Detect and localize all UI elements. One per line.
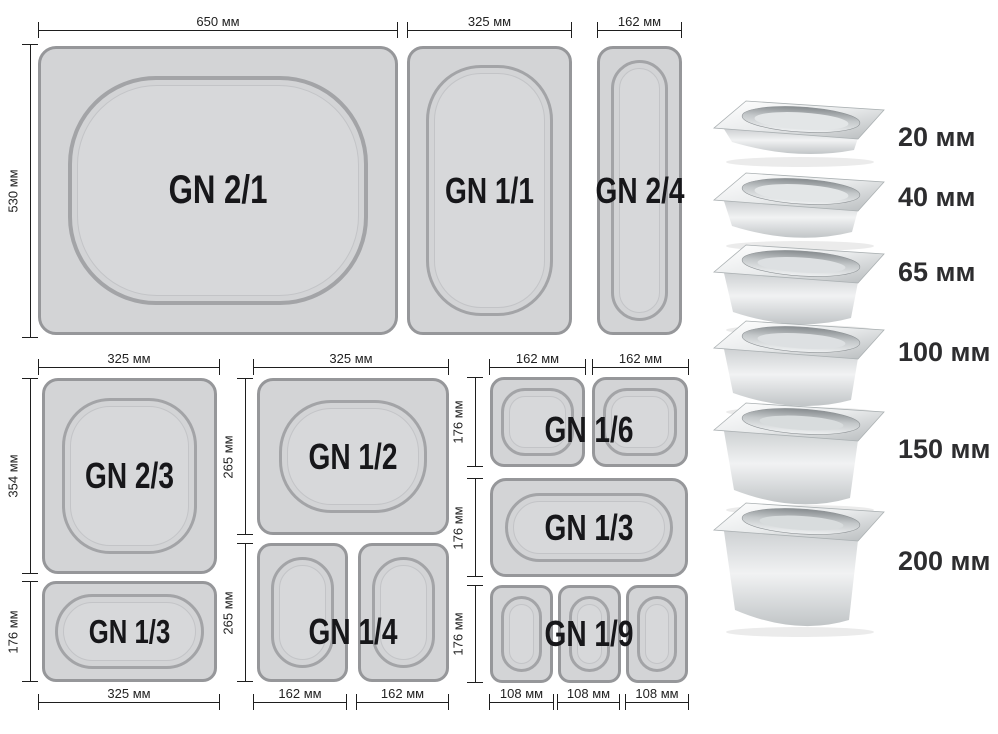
dim-width-162mm-top: 162 мм [597,22,682,38]
dim-label: 162 мм [356,686,449,701]
depth-label-150mm: 150 мм [898,434,998,466]
dim-label: 108 мм [625,686,689,701]
dim-label: 176 мм [451,612,466,655]
dim-label: 530 мм [6,169,21,212]
dim-tick [237,378,253,379]
tray-label-gn-1-3-left: GN 1/3 [61,581,198,682]
dim-line [475,478,476,577]
dim-line [489,702,554,703]
dim-width-325mm-bl-bottom: 325 мм [38,694,220,710]
pan-photo-20mm [712,96,890,175]
dim-label: 176 мм [451,506,466,549]
dim-line [30,44,31,338]
dim-tick [237,543,253,544]
dim-line [592,367,689,368]
dim-label: 265 мм [221,591,236,634]
dim-height-176mm-bl: 176 мм [22,581,38,682]
tray-label-gn-1-9: GN 1/9 [512,612,666,656]
dim-line [38,702,220,703]
dim-tick [467,377,483,378]
dim-height-354mm: 354 мм [22,378,38,574]
dim-tick [237,681,253,682]
dim-width-650mm: 650 мм [38,22,398,38]
dim-label: 325 мм [407,14,572,29]
dim-tick [22,337,38,338]
dim-line [30,581,31,682]
dim-label: 265 мм [221,435,236,478]
dim-width-325mm-bl-top: 325 мм [38,359,220,375]
dim-line [407,30,572,31]
dim-label: 176 мм [6,610,21,653]
dim-line [597,30,682,31]
dim-label: 162 мм [597,14,682,29]
dim-tick [467,682,483,683]
depth-label-100mm: 100 мм [898,337,998,369]
dim-width-162mm-right-a: 162 мм [489,359,586,375]
dim-line [557,702,620,703]
tray-label-gn-1-2: GN 1/2 [278,378,428,535]
dim-tick [237,534,253,535]
dim-line [356,702,449,703]
dim-height-176mm-r1: 176 мм [467,377,483,467]
tray-label-gn-1-1: GN 1/1 [425,46,554,335]
dim-line [30,378,31,574]
dim-line [253,367,449,368]
depth-label-200mm: 200 мм [898,546,998,578]
dim-height-265mm-top: 265 мм [237,378,253,535]
dim-line [489,367,586,368]
dim-width-325mm-top: 325 мм [407,22,572,38]
tray-label-gn-2-1: GN 2/1 [78,46,359,335]
dim-label: 176 мм [451,400,466,443]
dim-label: 325 мм [38,686,220,701]
dim-label: 325 мм [38,351,220,366]
dim-height-176mm-r3: 176 мм [467,585,483,683]
dim-tick [467,576,483,577]
dim-tick [22,44,38,45]
depth-label-65mm: 65 мм [898,257,998,289]
pan-photo-200mm [712,498,890,645]
tray-label-gn-1-4: GN 1/4 [278,610,428,654]
dim-tick [467,585,483,586]
dim-tick [467,466,483,467]
dim-line [38,30,398,31]
dim-width-108mm-b: 108 мм [557,694,620,710]
dim-width-162mm-right-b: 162 мм [592,359,689,375]
dim-label: 325 мм [253,351,449,366]
tray-label-gn-2-4: GN 2/4 [603,46,678,335]
dim-line [245,543,246,682]
dim-label: 162 мм [253,686,347,701]
dim-width-162mm-mid-a: 162 мм [253,694,347,710]
tray-label-gn-2-3: GN 2/3 [61,378,198,574]
dim-label: 354 мм [6,454,21,497]
dim-tick [22,378,38,379]
dim-label: 108 мм [557,686,620,701]
dim-height-176mm-r2: 176 мм [467,478,483,577]
dim-label: 162 мм [592,351,689,366]
dim-height-530mm: 530 мм [22,44,38,338]
dim-line [475,585,476,683]
dim-width-108mm-c: 108 мм [625,694,689,710]
dim-line [253,702,347,703]
dim-line [38,367,220,368]
depth-label-40mm: 40 мм [898,182,998,214]
dim-tick [22,573,38,574]
gastronorm-size-diagram: 650 мм 325 мм 162 мм 530 мм GN 2/1 GN 1/… [0,0,998,734]
dim-width-108mm-a: 108 мм [489,694,554,710]
dim-label: 108 мм [489,686,554,701]
dim-width-325mm-mid: 325 мм [253,359,449,375]
dim-width-162mm-mid-b: 162 мм [356,694,449,710]
dim-line [245,378,246,535]
dim-tick [467,478,483,479]
dim-label: 162 мм [489,351,586,366]
dim-tick [22,681,38,682]
tray-label-gn-1-6: GN 1/6 [512,408,666,452]
dim-label: 650 мм [38,14,398,29]
depth-label-20mm: 20 мм [898,122,998,154]
tray-label-gn-1-3-right: GN 1/3 [512,478,666,577]
dim-tick [22,581,38,582]
dim-height-265mm-bottom: 265 мм [237,543,253,682]
dim-line [475,377,476,467]
dim-line [625,702,689,703]
